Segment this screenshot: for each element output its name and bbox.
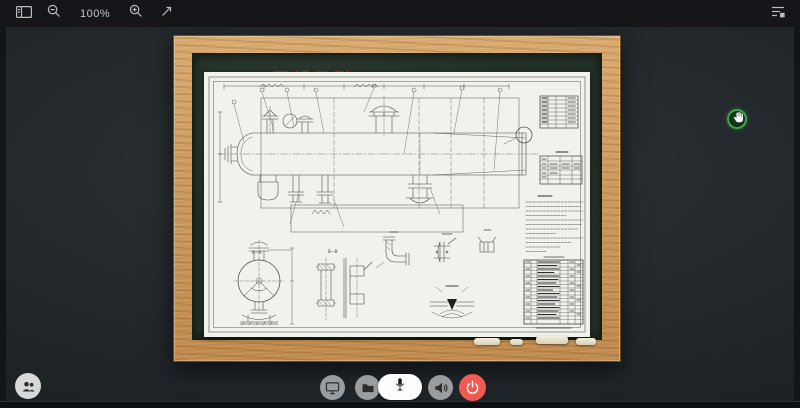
zoom-out-button[interactable] (42, 5, 66, 23)
chalk-piece (510, 339, 523, 345)
participants-icon (21, 380, 36, 393)
speaker-button[interactable] (428, 375, 453, 400)
hang-up-button[interactable] (459, 374, 486, 401)
view-label-aa: A—A (252, 250, 262, 255)
speaker-icon (433, 381, 449, 395)
top-toolbar: 100% (0, 0, 800, 27)
chalk-piece (536, 336, 568, 344)
chalk-piece (474, 338, 500, 345)
panel-toggle-button[interactable] (12, 5, 36, 23)
zoom-in-button[interactable] (124, 5, 148, 23)
panel-icon (16, 5, 32, 23)
taskbar-strip (0, 401, 800, 408)
power-icon (465, 380, 480, 395)
screen-share-button[interactable] (320, 375, 345, 400)
hand-cursor-icon (732, 110, 743, 128)
folder-button[interactable] (355, 375, 380, 400)
chalk-piece (576, 338, 596, 345)
zoom-out-icon (47, 4, 61, 23)
hand-cursor-badge (727, 109, 747, 129)
folder-icon (361, 382, 375, 394)
menu-icon (771, 5, 786, 23)
zoom-in-icon (129, 4, 143, 23)
blackboard: 1.8 图纸示例 (173, 35, 621, 362)
fit-screen-button[interactable] (154, 5, 178, 23)
microphone-button[interactable] (378, 374, 422, 400)
zoom-level-label: 100% (80, 8, 110, 20)
engineering-drawing: A—A B—B (204, 72, 590, 337)
microphone-icon (393, 376, 407, 398)
fit-screen-icon (160, 5, 173, 23)
menu-button[interactable] (766, 5, 790, 23)
view-label-bb: B—B (328, 249, 338, 254)
screen-share-icon (325, 381, 340, 395)
classroom-app: 100% 1.8 图纸示例 (0, 0, 800, 408)
zoom-controls: 100% (12, 5, 178, 23)
drawing-canvas: A—A B—B (204, 72, 590, 337)
participants-button[interactable] (15, 373, 41, 399)
